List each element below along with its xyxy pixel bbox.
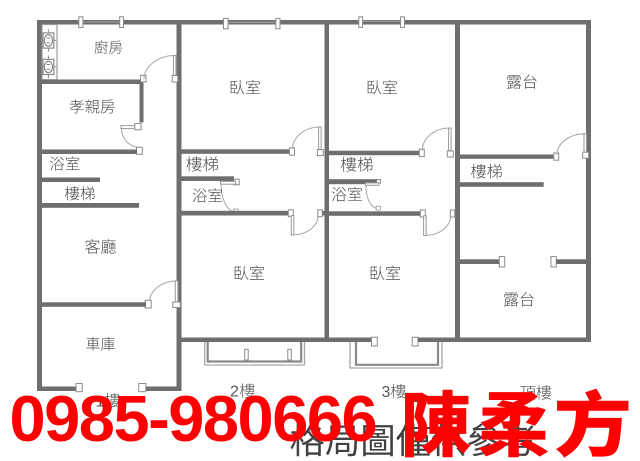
svg-text:3: 3 xyxy=(382,384,391,401)
svg-text:0985-980666: 0985-980666 xyxy=(10,382,377,455)
